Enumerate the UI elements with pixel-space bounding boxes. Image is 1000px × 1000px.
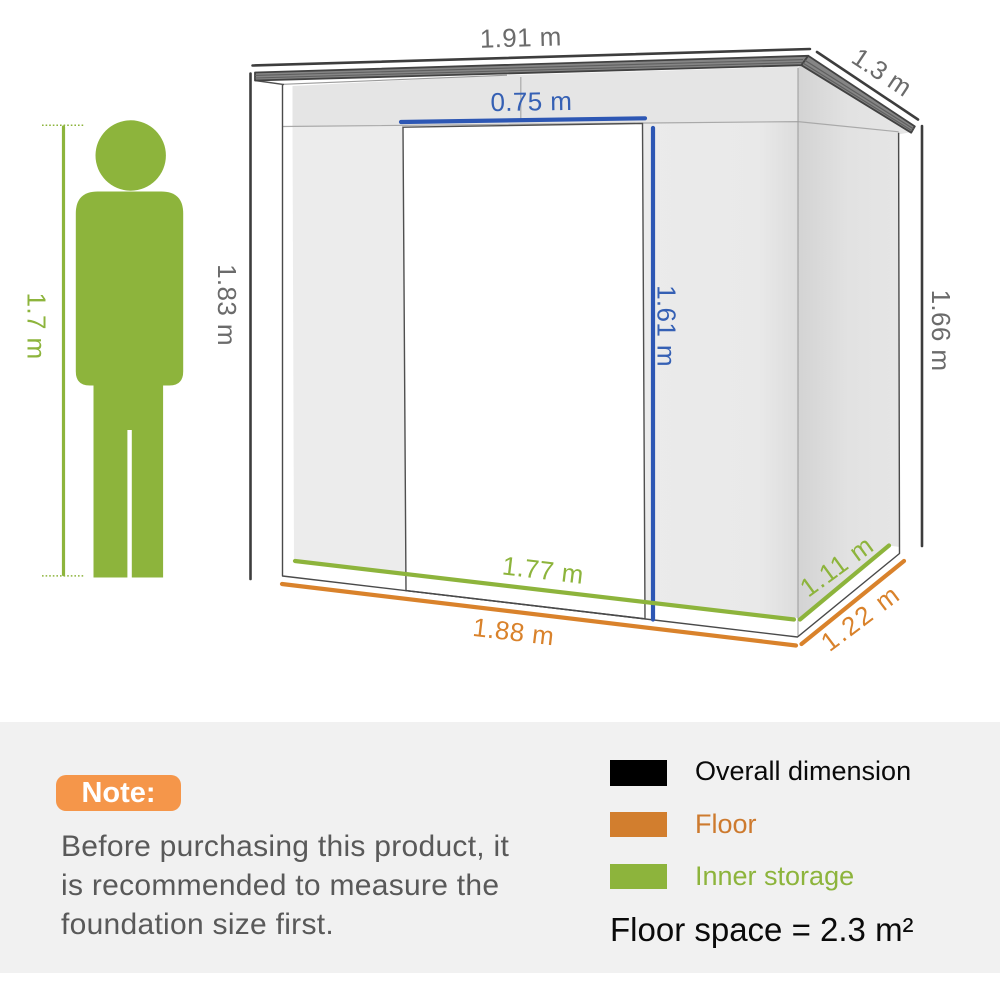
svg-text:1.83 m: 1.83 m <box>212 264 242 346</box>
svg-text:1.88 m: 1.88 m <box>471 612 556 651</box>
svg-text:1.7 m: 1.7 m <box>22 292 52 359</box>
svg-text:0.75 m: 0.75 m <box>490 86 572 117</box>
svg-text:1.61 m: 1.61 m <box>652 285 682 367</box>
svg-text:1.66 m: 1.66 m <box>926 290 956 372</box>
svg-text:1.91 m: 1.91 m <box>479 21 562 53</box>
